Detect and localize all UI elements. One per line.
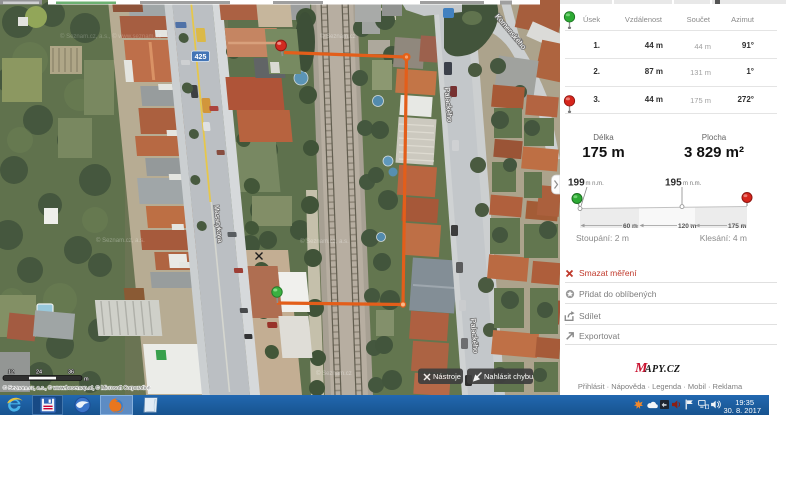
svg-text:Nástroje: Nástroje: [433, 372, 461, 381]
svg-text:12: 12: [8, 370, 14, 376]
svg-text:120 m: 120 m: [678, 223, 697, 230]
svg-text:24: 24: [36, 370, 42, 376]
svg-text:Nahlásit chybu: Nahlásit chybu: [484, 372, 533, 381]
svg-text:195: 195: [665, 178, 682, 189]
svg-text:m n.m.: m n.m.: [683, 181, 702, 187]
svg-text:36: 36: [68, 370, 74, 376]
svg-text:Klesání: 4 m: Klesání: 4 m: [700, 233, 747, 243]
svg-text:m: m: [84, 377, 89, 383]
svg-text:425: 425: [195, 54, 207, 61]
svg-text:199: 199: [568, 178, 585, 189]
svg-text:m n.m.: m n.m.: [586, 181, 605, 187]
svg-text:Stoupání: 2 m: Stoupání: 2 m: [576, 233, 629, 243]
svg-text:© Seznam.cz, a.s., © www.basem: © Seznam.cz, a.s., © www.basemap.at, © M…: [3, 385, 151, 392]
svg-text:© Seznam.cz: © Seznam.cz: [320, 33, 356, 40]
svg-text:© Seznam.cz, a.s.: © Seznam.cz, a.s.: [300, 238, 349, 245]
svg-text:© Seznam.cz: © Seznam.cz: [316, 370, 352, 377]
svg-text:© Seznam.cz, a.s.: © Seznam.cz, a.s.: [96, 237, 145, 244]
svg-text:© Seznam.cz, a.s., © www.sezna: © Seznam.cz, a.s., © www.seznam.cz: [60, 33, 161, 40]
